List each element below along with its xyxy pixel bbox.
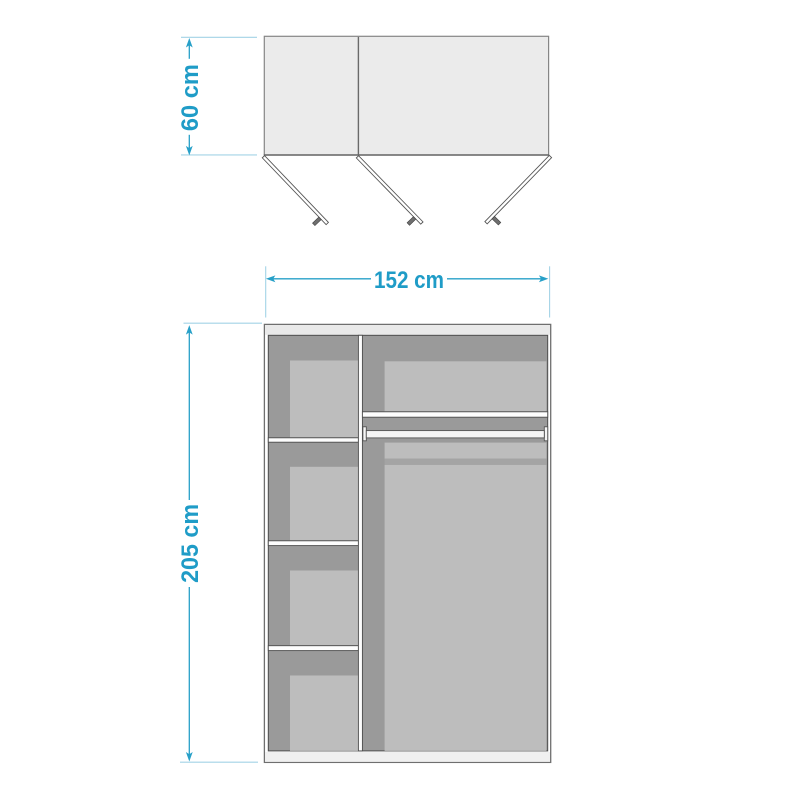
- svg-text:152 cm: 152 cm: [374, 267, 444, 294]
- svg-text:205 cm: 205 cm: [177, 504, 204, 583]
- svg-text:60 cm: 60 cm: [177, 64, 204, 131]
